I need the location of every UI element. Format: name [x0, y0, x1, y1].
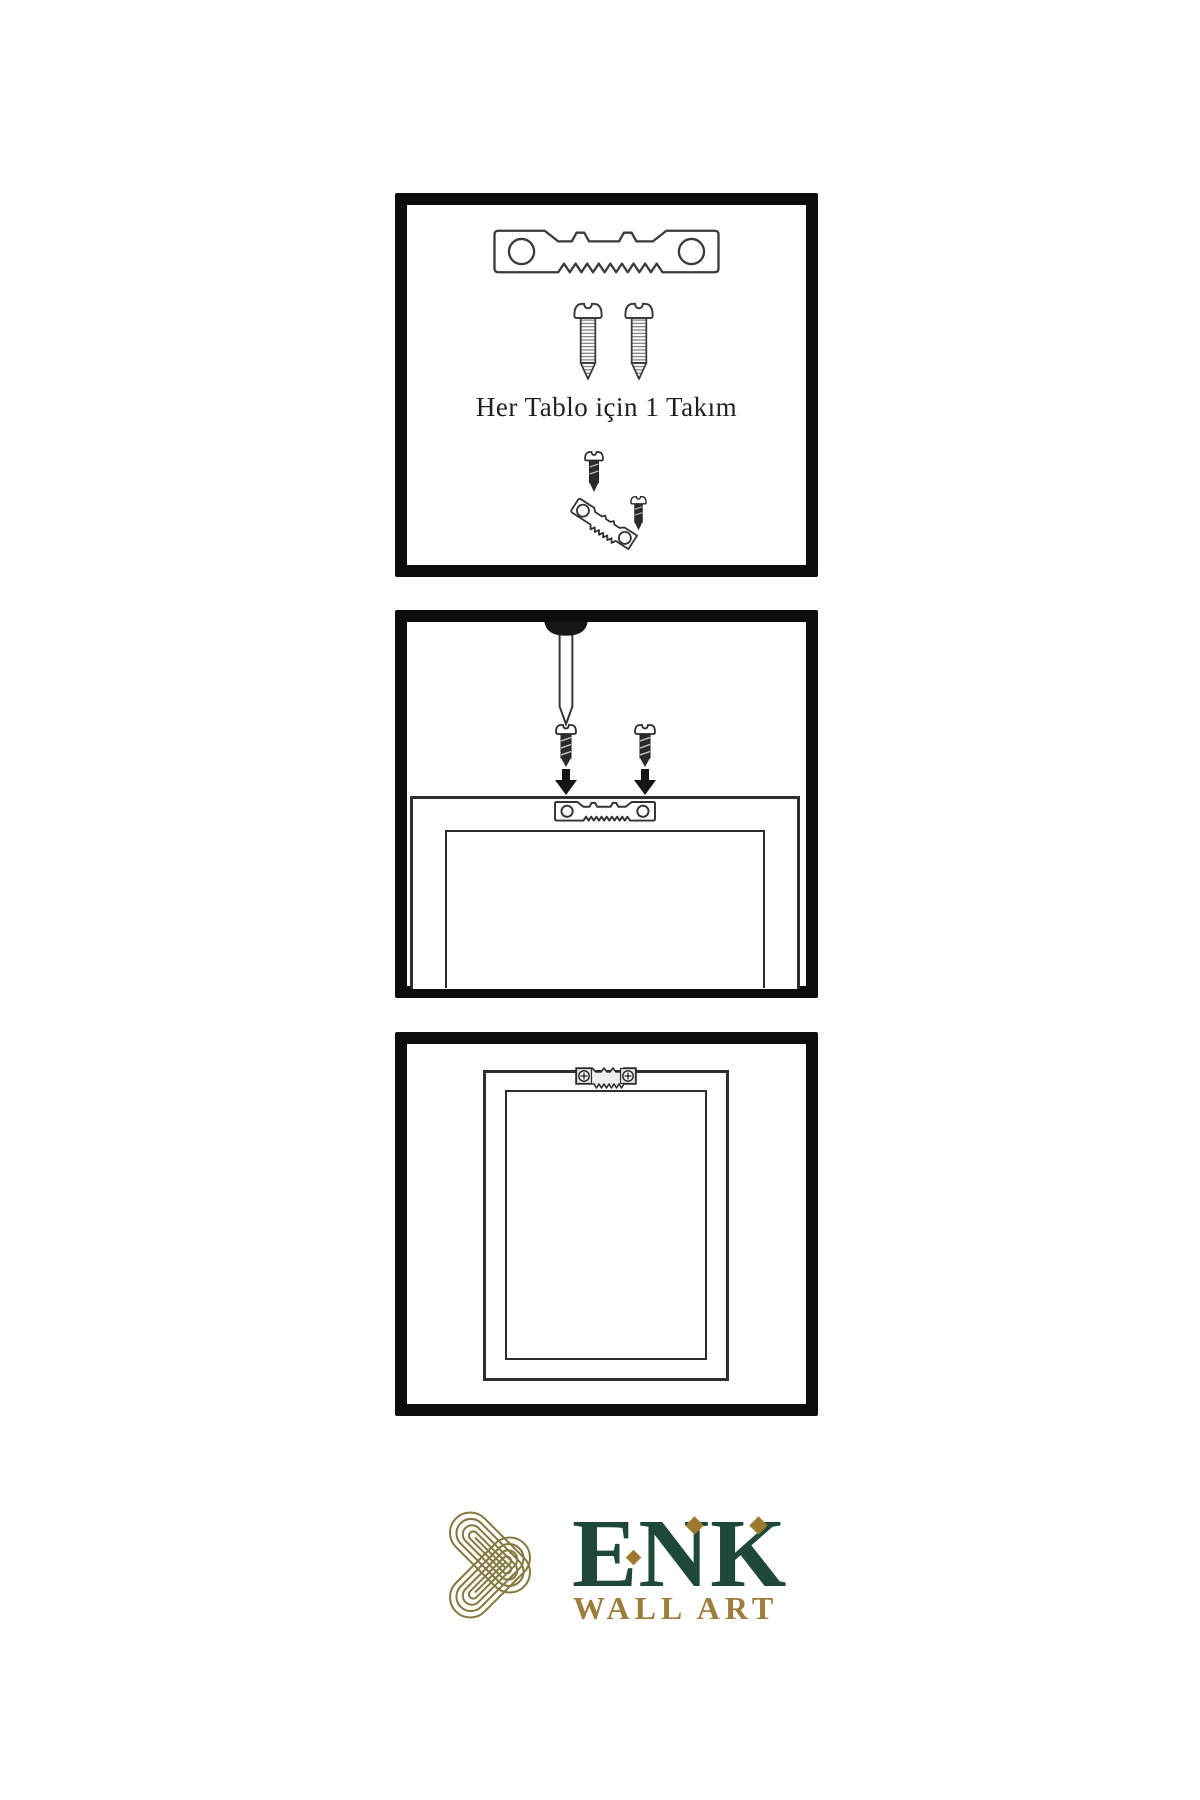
screw-icon: [570, 299, 606, 381]
dark-screw-icon: [553, 722, 579, 768]
mini-dark-screw-icon: [583, 450, 605, 494]
panel-hanging-result: [395, 1032, 818, 1416]
sawtooth-hanger-icon: [490, 224, 723, 280]
screw-icon: [621, 299, 657, 381]
sawtooth-hanger-small-icon: [553, 799, 657, 824]
picture-frame-inner: [505, 1090, 707, 1360]
panel-mounting-steps: [395, 610, 818, 998]
down-arrow-icon: [554, 769, 578, 795]
down-arrow-icon: [633, 769, 657, 795]
knot-logo-icon: [437, 1504, 543, 1626]
fastening-illustration: [555, 445, 675, 557]
kit-caption: Her Tablo için 1 Takım: [407, 391, 806, 423]
panel-hardware-kit: Her Tablo için 1 Takım: [395, 193, 818, 577]
wall-nail-icon: [542, 622, 590, 728]
frame-back-inner-outline: [445, 830, 765, 988]
instruction-sheet: Her Tablo için 1 Takım: [0, 0, 1200, 1800]
brand-subtitle: WALL ART: [573, 1590, 778, 1626]
mini-dark-screw-icon: [629, 495, 648, 532]
dark-screw-icon: [632, 722, 658, 768]
mounted-sawtooth-hanger-icon: [573, 1063, 639, 1091]
